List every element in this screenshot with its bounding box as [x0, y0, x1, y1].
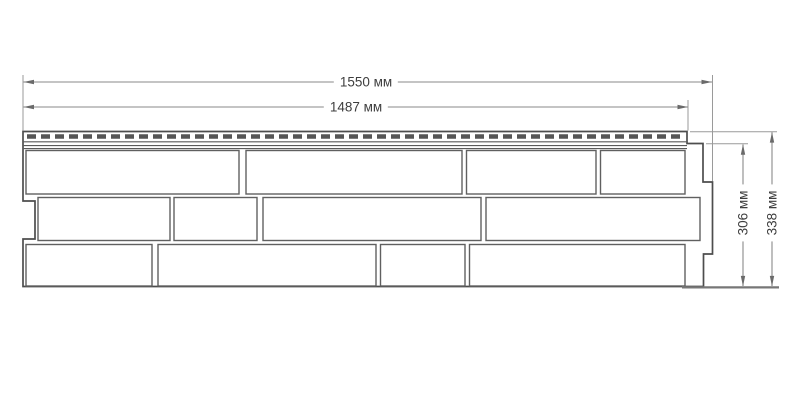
arrowhead-up	[741, 144, 745, 155]
arrowhead-down	[770, 276, 774, 287]
brick	[26, 245, 152, 287]
brick	[467, 151, 597, 195]
dim-label-height-total: 338 мм	[763, 185, 781, 242]
brick	[246, 151, 462, 195]
brick	[486, 198, 700, 241]
arrowhead-right	[702, 80, 713, 84]
brick	[381, 245, 466, 287]
brick	[158, 245, 376, 287]
arrowhead-left	[24, 80, 35, 84]
brick	[26, 151, 239, 195]
panel-drawing	[0, 0, 800, 400]
dim-label-width-total: 1550 мм	[334, 73, 398, 91]
diagram-canvas: 1550 мм 1487 мм 306 мм 338 мм	[0, 0, 800, 400]
dim-label-width-nail-strip: 1487 мм	[324, 98, 388, 116]
brick	[601, 151, 686, 195]
arrowhead-right	[678, 105, 689, 109]
brick	[470, 245, 686, 287]
brick	[174, 198, 257, 241]
dim-label-height-face: 306 мм	[734, 185, 752, 242]
brick	[38, 198, 170, 241]
brick-row-2	[38, 198, 700, 241]
brick-row-1	[26, 151, 685, 195]
brick	[263, 198, 481, 241]
brick-row-3	[26, 245, 685, 287]
arrowhead-left	[24, 105, 35, 109]
arrowhead-down	[741, 276, 745, 287]
arrowhead-up	[770, 132, 774, 143]
